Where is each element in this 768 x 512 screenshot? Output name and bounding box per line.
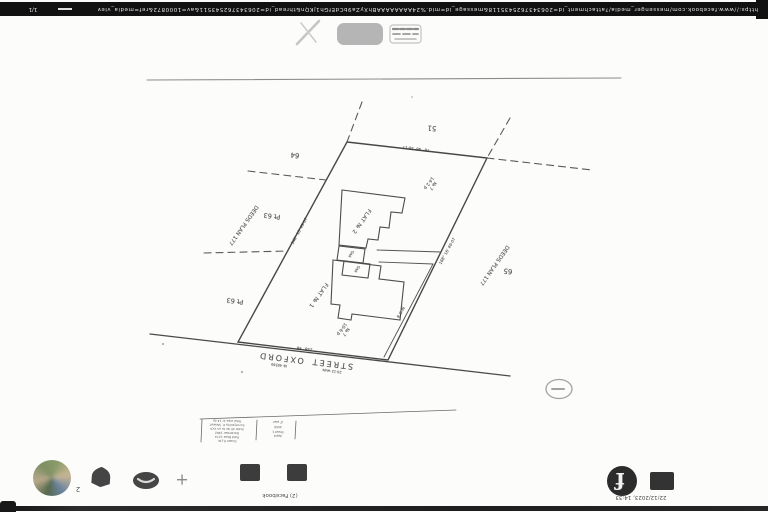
right-of-way-lines [377, 250, 441, 357]
lot-65-label: 65 [503, 266, 513, 275]
viewer-gray-button[interactable] [337, 23, 383, 45]
tab-favicon-square[interactable] [240, 464, 260, 481]
title-block-row: Appd [274, 434, 282, 438]
window-control-square[interactable] [650, 472, 674, 490]
avatar-photo [33, 460, 71, 496]
lot-64-label: 64 [290, 150, 300, 159]
tab-favicon-square[interactable] [287, 464, 307, 481]
title-block-row: Drawn E.J.M. [218, 439, 237, 443]
flat-2-outline [339, 190, 405, 248]
scan-edge-blob [0, 501, 16, 512]
flat-1-outline [331, 260, 404, 320]
lot-51-label: 51 [427, 123, 437, 132]
title-block-row: 4059 [274, 425, 282, 429]
dashed-boundary-extensions [204, 102, 592, 253]
print-footer-url: https://www.facebook.com/messenger_media… [98, 6, 758, 12]
stamp-ellipse [546, 380, 572, 399]
new-tab-plus-icon[interactable]: + [175, 471, 188, 490]
viewer-draw-icon[interactable] [297, 21, 319, 44]
shield-icon[interactable] [87, 464, 115, 490]
survey-plan-drawing [0, 0, 768, 512]
viewer-keyboard-icon[interactable] [390, 25, 421, 43]
page-rule-line [147, 78, 621, 80]
eye-oval-icon[interactable] [133, 472, 159, 489]
footer-dash [58, 8, 72, 10]
profile-badge: 2 [76, 485, 80, 493]
facebook-logo-icon[interactable]: f [607, 466, 637, 496]
scan-speckles [162, 96, 413, 373]
tab-title: (2) Facebook [262, 492, 297, 498]
facebook-f-letter: f [615, 467, 624, 493]
scanned-page: 1/1 https://www.facebook.com/messenger_m… [0, 0, 768, 512]
title-block-row: LT plan [273, 420, 284, 424]
scan-edge-strip [0, 506, 768, 511]
page-number: 1/1 [29, 6, 38, 12]
print-timestamp: 22/12/2023, 14:33 [615, 494, 666, 500]
profile-avatar[interactable] [33, 460, 71, 496]
